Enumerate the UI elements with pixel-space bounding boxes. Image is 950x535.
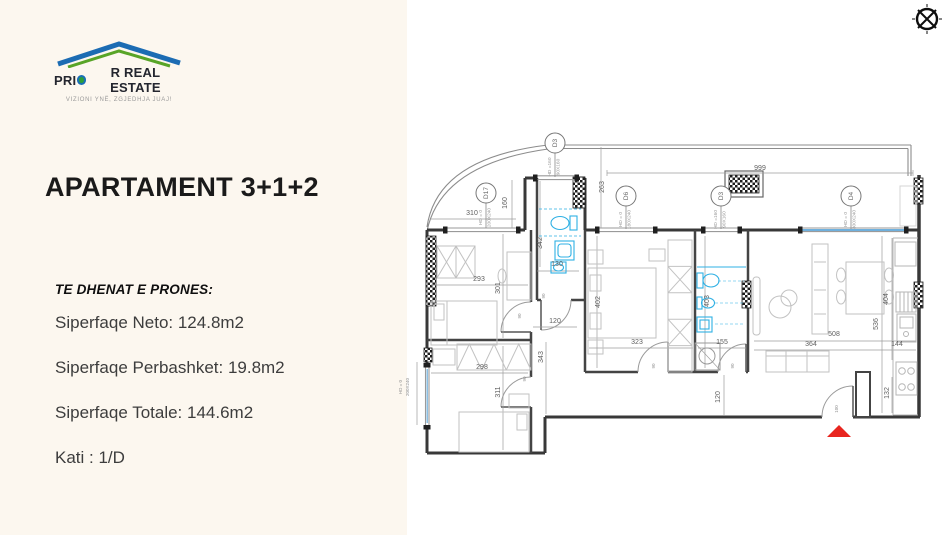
dimension-label: 120 (549, 318, 561, 325)
door-size-label: 200X240 (405, 378, 410, 397)
door-marker-label: D6 (623, 191, 630, 200)
dimension-label: 343 (538, 351, 545, 363)
door-size-label: 90 (541, 293, 546, 299)
dimension-label: 402 (595, 296, 602, 308)
dimension-label: 404 (883, 293, 890, 305)
door-size-label: HD = 0 (398, 379, 403, 394)
dimension-label: 155 (716, 339, 728, 346)
dimension-label: 301 (495, 282, 502, 294)
dimension-label: 508 (828, 331, 840, 338)
dimension-label: 130 (551, 261, 563, 268)
dimension-label: 342 (537, 237, 544, 249)
entrance-marker (827, 425, 851, 437)
door-spec-label: 90X160 (722, 211, 728, 228)
balcony-railing (427, 145, 911, 231)
door-size-label: 90 (730, 363, 735, 369)
dimension-label: 160 (502, 197, 509, 209)
door-marker-label: D4 (848, 191, 855, 200)
door-size-label: 100 (834, 405, 839, 413)
door-marker-label: D3 (552, 138, 559, 147)
dimension-label: 310 (466, 210, 478, 217)
door-spec-label: 300X240 (852, 210, 858, 230)
dimension-label: 144 (891, 341, 903, 348)
dimension-label: 999 (754, 165, 766, 172)
dimension-label: 293 (473, 276, 485, 283)
door-spec-label: HD = 0 (478, 210, 484, 225)
door-spec-label: HD = 0 (843, 212, 849, 227)
dimension-label: 132 (884, 387, 891, 399)
dimension-label: 120 (715, 391, 722, 403)
dimension-label: 263 (599, 181, 606, 193)
door-marker-label: D17 (483, 187, 490, 199)
door-size-label: 90 (517, 313, 522, 319)
door-spec-label: HD = 0 (618, 212, 624, 227)
door-spec-label: HD =160 (547, 157, 553, 176)
door-spec-label: 180X240 (627, 210, 633, 230)
door-size-label: 90 (522, 376, 527, 382)
door-size-label: 90 (651, 363, 656, 369)
door-marker-label: D3 (718, 191, 725, 200)
dimension-label: 536 (873, 318, 880, 330)
door-spec-label: 90X160 (556, 158, 562, 175)
dimension-label: 298 (476, 364, 488, 371)
floorplan-labels: 9992633101603421302933011202983113434023… (398, 165, 903, 413)
compass-icon (912, 4, 942, 34)
shower (695, 343, 720, 370)
kitchen-counter (893, 238, 918, 415)
door-spec-label: 200X240 (487, 208, 493, 228)
door-spec-label: HD =160 (713, 210, 719, 229)
dimension-label: 403 (704, 295, 711, 307)
dimension-label: 323 (631, 339, 643, 346)
dimension-label: 364 (805, 341, 817, 348)
dimension-label: 311 (495, 386, 502, 397)
floorplan-svg: D17HD = 0200X240D3HD =16090X160D6HD = 01… (0, 0, 950, 535)
